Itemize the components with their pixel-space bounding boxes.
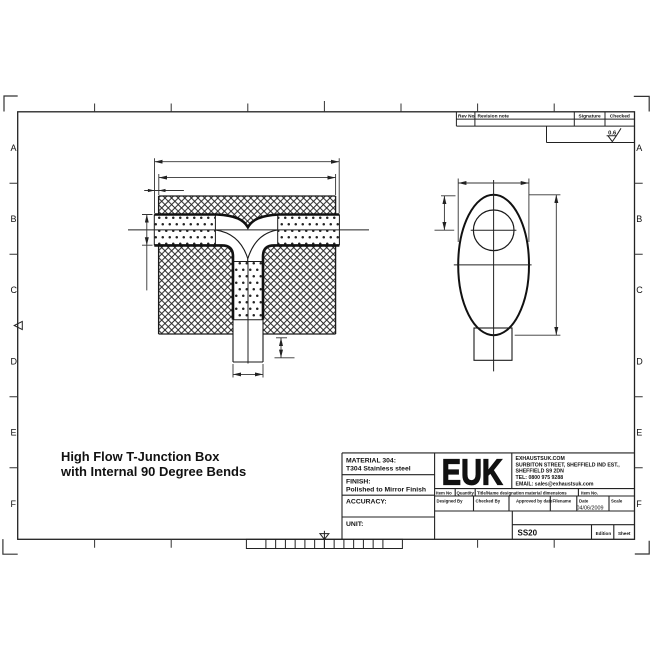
svg-text:Revision note: Revision note <box>478 113 510 119</box>
svg-text:04/06/2009: 04/06/2009 <box>577 506 604 512</box>
svg-text:F: F <box>636 499 642 509</box>
svg-text:ACCURACY:: ACCURACY: <box>346 499 387 506</box>
svg-text:Checked By: Checked By <box>476 498 501 503</box>
svg-text:Approved by date: Approved by date <box>516 498 553 503</box>
svg-text:TEL: 0800 975 9288: TEL: 0800 975 9288 <box>516 475 564 481</box>
svg-text:C: C <box>11 285 18 295</box>
svg-text:B: B <box>636 214 642 224</box>
svg-text:Designed By: Designed By <box>437 498 464 503</box>
svg-text:Item No.: Item No. <box>581 491 598 496</box>
svg-text:with Internal 90 Degree Bends: with Internal 90 Degree Bends <box>60 465 246 479</box>
svg-text:Polished to Mirror Finish: Polished to Mirror Finish <box>346 487 426 494</box>
svg-text:UNIT:: UNIT: <box>346 521 363 528</box>
svg-text:Checked: Checked <box>610 113 630 119</box>
svg-text:High Flow T-Junction Box: High Flow T-Junction Box <box>61 450 219 464</box>
svg-text:Title/Name designation materia: Title/Name designation material dimensio… <box>477 491 567 496</box>
svg-text:C: C <box>636 285 643 295</box>
svg-text:MATERIAL 304:: MATERIAL 304: <box>346 457 396 464</box>
svg-text:EUK: EUK <box>442 452 503 493</box>
svg-text:EXHAUSTSUK.COM: EXHAUSTSUK.COM <box>516 456 565 462</box>
svg-text:B: B <box>11 214 17 224</box>
svg-text:A: A <box>636 143 642 153</box>
svg-text:FINISH:: FINISH: <box>346 479 371 486</box>
svg-text:Rev No: Rev No <box>458 113 475 119</box>
svg-text:Item No: Item No <box>436 491 452 496</box>
svg-text:Signature: Signature <box>579 113 601 119</box>
svg-text:E: E <box>636 428 642 438</box>
svg-text:SHEFFIELD S9 2DN: SHEFFIELD S9 2DN <box>516 469 565 475</box>
svg-text:Sheet: Sheet <box>618 531 631 536</box>
svg-text:Edition: Edition <box>596 531 612 536</box>
svg-text:Date: Date <box>579 498 589 503</box>
svg-text:A: A <box>11 143 17 153</box>
svg-text:D: D <box>636 356 643 366</box>
svg-text:SURBITON STREET, SHEFFIELD IND: SURBITON STREET, SHEFFIELD IND EST., <box>516 462 621 468</box>
svg-text:Scale: Scale <box>611 498 623 503</box>
svg-text:E: E <box>11 428 17 438</box>
svg-text:T304 Stainless steel: T304 Stainless steel <box>346 466 411 473</box>
svg-text:EMAIL: sales@exhaustsuk.com: EMAIL: sales@exhaustsuk.com <box>516 481 594 487</box>
svg-text:Filename: Filename <box>553 498 572 503</box>
svg-text:SS20: SS20 <box>518 529 538 538</box>
svg-text:F: F <box>11 499 17 509</box>
svg-text:Quantity: Quantity <box>457 491 475 496</box>
svg-text:D: D <box>11 356 18 366</box>
